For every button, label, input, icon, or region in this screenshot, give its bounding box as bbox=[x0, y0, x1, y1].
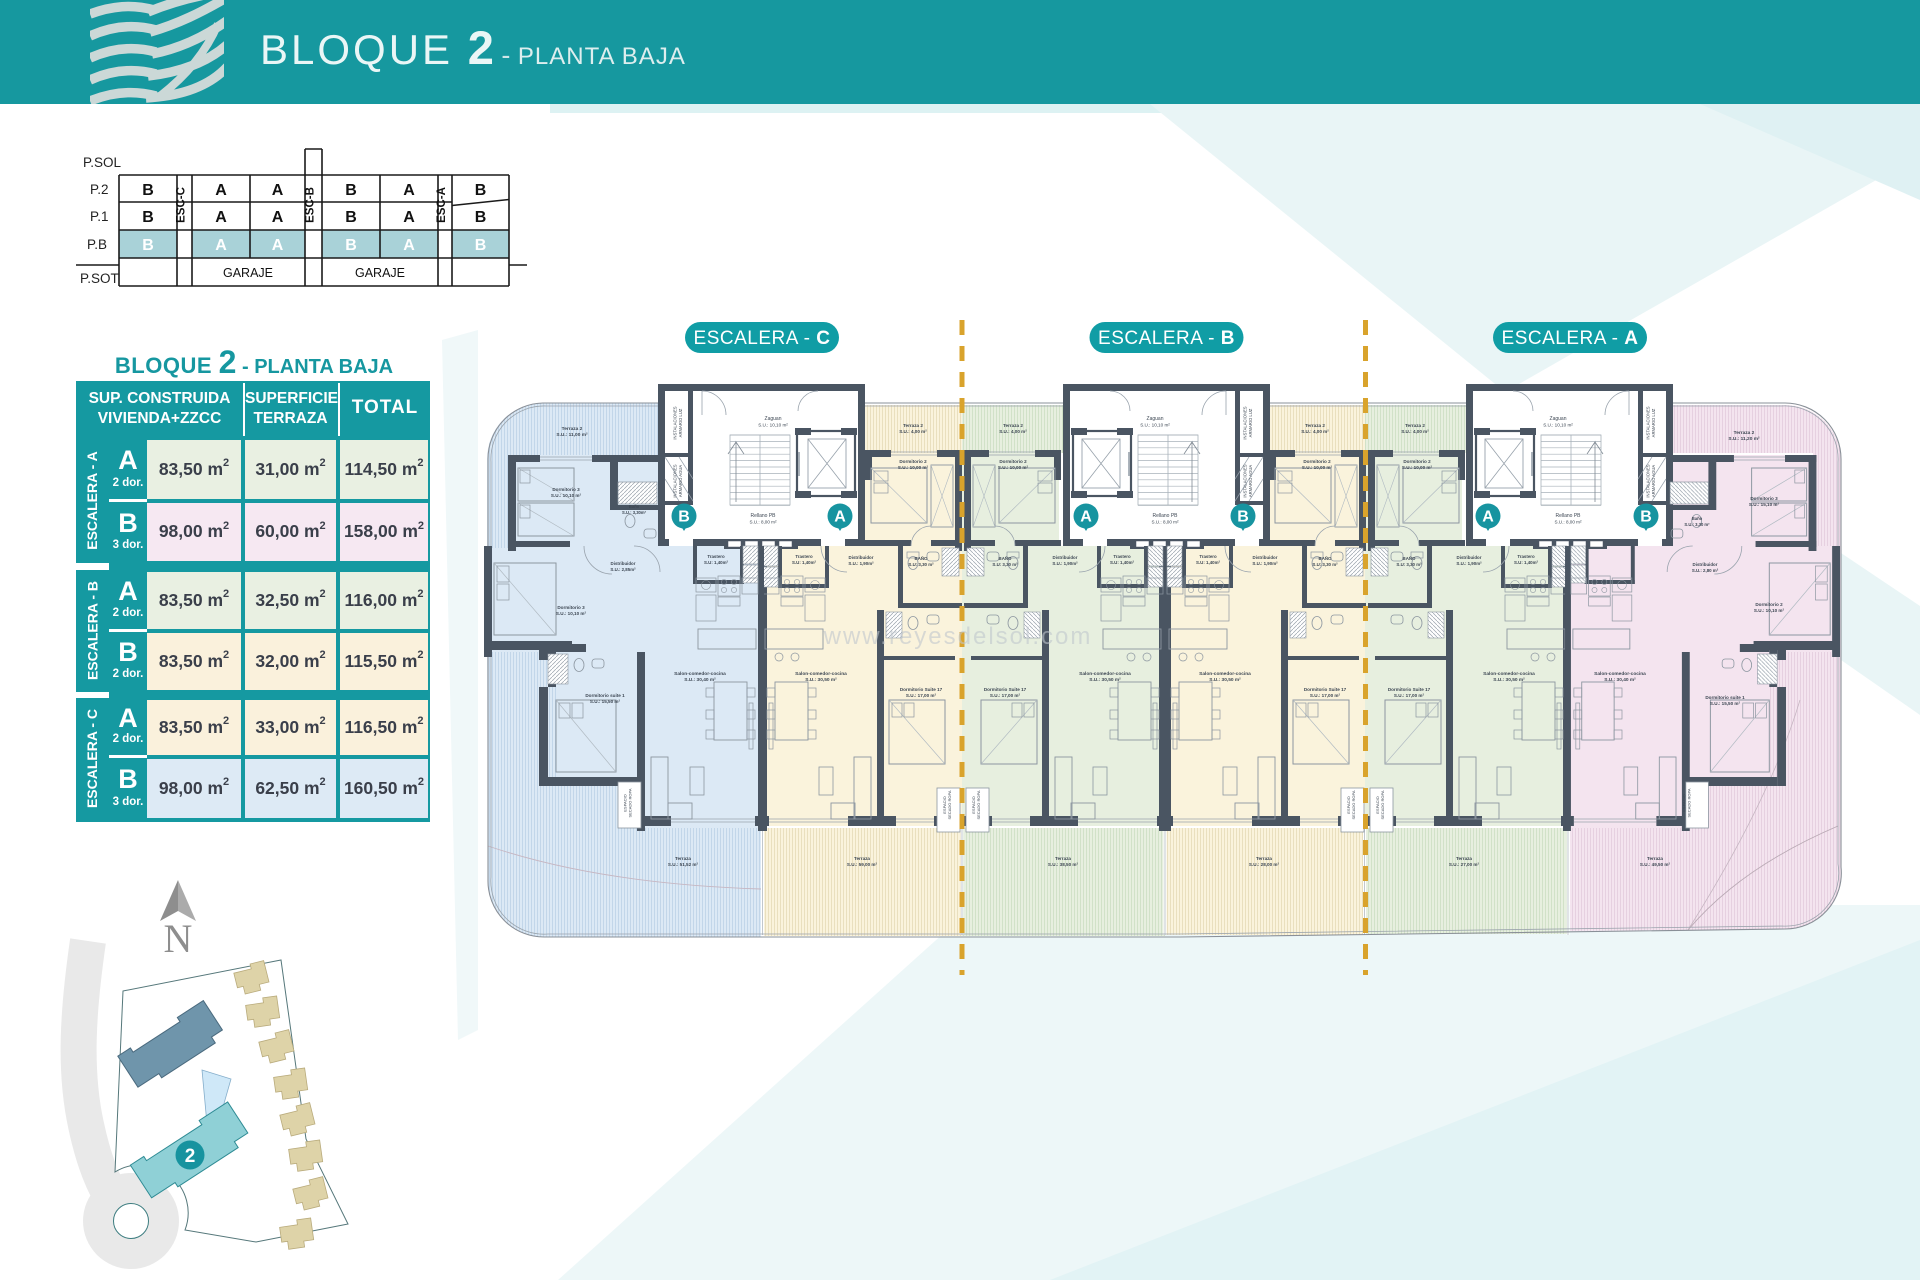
svg-text:ESC-C: ESC-C bbox=[176, 187, 188, 223]
svg-text:S.U.: 10,00 m²: S.U.: 10,00 m² bbox=[1302, 465, 1333, 470]
svg-text:A: A bbox=[403, 209, 415, 226]
svg-text:S.U.: 11,00 m²: S.U.: 11,00 m² bbox=[556, 432, 588, 438]
svg-text:Trastero: Trastero bbox=[1113, 554, 1131, 559]
svg-text:Baño: Baño bbox=[1692, 516, 1703, 521]
svg-text:N: N bbox=[164, 916, 193, 961]
svg-text:P.1: P.1 bbox=[90, 209, 109, 224]
svg-text:ESCALERA - B: ESCALERA - B bbox=[1098, 328, 1235, 349]
svg-text:Distribuidor: Distribuidor bbox=[849, 555, 874, 560]
svg-text:B: B bbox=[1640, 509, 1652, 526]
svg-text:B: B bbox=[678, 509, 690, 526]
svg-text:Terraza: Terraza bbox=[1647, 856, 1663, 861]
svg-text:S.U.: 2,80 m²: S.U.: 2,80 m² bbox=[1692, 568, 1719, 573]
svg-text:Salon-comedor-cocina: Salon-comedor-cocina bbox=[1594, 671, 1646, 677]
svg-text:ARMARIO AGUA: ARMARIO AGUA bbox=[1248, 465, 1253, 498]
svg-text:Dormitorio 2: Dormitorio 2 bbox=[899, 459, 927, 464]
svg-text:Trastero: Trastero bbox=[795, 554, 813, 559]
svg-text:S.U.: 4,00 m²: S.U.: 4,00 m² bbox=[1401, 429, 1429, 434]
svg-text:S.U.: 17,00 m²: S.U.: 17,00 m² bbox=[1394, 693, 1425, 698]
svg-text:Distribuidor: Distribuidor bbox=[611, 561, 636, 566]
svg-text:B: B bbox=[345, 182, 357, 199]
svg-text:Rellano PB: Rellano PB bbox=[750, 513, 776, 519]
svg-text:S.U.: 10,10 m²: S.U.: 10,10 m² bbox=[1543, 423, 1573, 428]
svg-text:Trastero: Trastero bbox=[1199, 554, 1217, 559]
svg-text:Dormitorio 2: Dormitorio 2 bbox=[1403, 459, 1431, 464]
svg-text:ARMARIO AGUA: ARMARIO AGUA bbox=[678, 465, 683, 498]
svg-text:Terraza: Terraza bbox=[1055, 856, 1071, 861]
svg-text:P.SOL: P.SOL bbox=[83, 155, 122, 170]
svg-text:GARAJE: GARAJE bbox=[223, 266, 273, 280]
svg-text:ARMARIO LUZ: ARMARIO LUZ bbox=[1651, 408, 1656, 437]
svg-text:GARAJE: GARAJE bbox=[355, 266, 405, 280]
svg-text:Distribuidor: Distribuidor bbox=[1053, 555, 1078, 560]
svg-text:S.U.: 4,00 m²: S.U.: 4,00 m² bbox=[899, 429, 927, 434]
svg-text:ARMARIO LUZ: ARMARIO LUZ bbox=[678, 408, 683, 437]
svg-text:ESCALERA - A: ESCALERA - A bbox=[1502, 328, 1639, 349]
svg-text:2: 2 bbox=[185, 1146, 196, 1167]
svg-text:S.U.: 15,50 m²: S.U.: 15,50 m² bbox=[590, 699, 621, 704]
svg-text:INSTALACIONES: INSTALACIONES bbox=[673, 406, 678, 439]
svg-text:A: A bbox=[403, 182, 415, 199]
svg-text:Trastero: Trastero bbox=[707, 554, 725, 559]
svg-text:B: B bbox=[345, 237, 357, 254]
svg-text:S.U.: 51,52 m²: S.U.: 51,52 m² bbox=[668, 862, 699, 867]
svg-text:BAÑO: BAÑO bbox=[1403, 556, 1417, 561]
svg-text:S.U: 3,30 m²: S.U: 3,30 m² bbox=[992, 562, 1018, 567]
svg-text:S.U.: 1,90m²: S.U.: 1,90m² bbox=[1252, 561, 1278, 566]
svg-text:B: B bbox=[345, 209, 357, 226]
svg-text:S.U.: 10,10 m²: S.U.: 10,10 m² bbox=[1754, 608, 1785, 613]
svg-text:S.U.: 10,10 m²: S.U.: 10,10 m² bbox=[556, 611, 587, 616]
svg-text:Salon-comedor-cocina: Salon-comedor-cocina bbox=[1483, 671, 1535, 677]
svg-text:A: A bbox=[215, 182, 227, 199]
svg-text:Dormitorio 3: Dormitorio 3 bbox=[1750, 496, 1778, 501]
svg-text:B: B bbox=[142, 182, 154, 199]
svg-text:P.2: P.2 bbox=[90, 182, 109, 197]
svg-text:Terraza 2: Terraza 2 bbox=[1734, 430, 1755, 436]
svg-text:S.U.: 3,30m²: S.U.: 3,30m² bbox=[622, 510, 647, 515]
svg-text:S.U.: 17,00 m²: S.U.: 17,00 m² bbox=[990, 693, 1021, 698]
svg-text:S.U.: 1,90m²: S.U.: 1,90m² bbox=[848, 561, 874, 566]
svg-text:Dormitorio Suite 17: Dormitorio Suite 17 bbox=[984, 687, 1027, 692]
svg-text:S.U.: 38,50 m²: S.U.: 38,50 m² bbox=[1048, 862, 1079, 867]
svg-text:Distribuidor: Distribuidor bbox=[1253, 555, 1278, 560]
svg-text:S.U.: 1,90m²: S.U.: 1,90m² bbox=[1052, 561, 1078, 566]
svg-text:Terraza 2: Terraza 2 bbox=[1305, 423, 1325, 428]
svg-text:S.U.: 17,00 m²: S.U.: 17,00 m² bbox=[906, 693, 937, 698]
svg-text:S.U.: 11,20 m²: S.U.: 11,20 m² bbox=[1728, 436, 1760, 442]
svg-text:Dormitorio suite 1: Dormitorio suite 1 bbox=[1705, 695, 1745, 700]
svg-text:S.U.: 17,00 m²: S.U.: 17,00 m² bbox=[1310, 693, 1341, 698]
svg-text:Salon-comedor-cocina: Salon-comedor-cocina bbox=[1079, 671, 1131, 677]
svg-text:S.U.: 1,90m²: S.U.: 1,90m² bbox=[1456, 561, 1482, 566]
svg-text:S.U.: 10,00 m²: S.U.: 10,00 m² bbox=[898, 465, 929, 470]
svg-text:INSTALACIONES: INSTALACIONES bbox=[1243, 464, 1248, 497]
svg-text:S.U.: 8,00 m²: S.U.: 8,00 m² bbox=[749, 520, 777, 525]
svg-text:Dormitorio 2: Dormitorio 2 bbox=[999, 459, 1027, 464]
svg-text:S.U.: 30,50 m²: S.U.: 30,50 m² bbox=[1493, 677, 1525, 683]
svg-text:S.U.: 49,50 m²: S.U.: 49,50 m² bbox=[1640, 862, 1671, 867]
svg-text:INSTALACIONES: INSTALACIONES bbox=[1243, 406, 1248, 439]
svg-text:Terraza: Terraza bbox=[1456, 856, 1472, 861]
svg-text:S.U.: 30,50 m²: S.U.: 30,50 m² bbox=[1209, 677, 1241, 683]
svg-text:S.U.: 15,50 m²: S.U.: 15,50 m² bbox=[1710, 701, 1741, 706]
svg-text:S.U: 3,30 m²: S.U: 3,30 m² bbox=[1396, 562, 1422, 567]
svg-text:SECADO ROPA: SECADO ROPA bbox=[1687, 788, 1692, 817]
svg-text:S.U.: 15,10 m²: S.U.: 15,10 m² bbox=[1749, 502, 1780, 507]
svg-text:BAÑO: BAÑO bbox=[999, 556, 1013, 561]
svg-text:S.U.: 2,85m²: S.U.: 2,85m² bbox=[610, 567, 636, 572]
svg-text:S.U.: 8,00 m²: S.U.: 8,00 m² bbox=[1554, 520, 1582, 525]
svg-text:BAÑO: BAÑO bbox=[1319, 556, 1333, 561]
svg-text:A: A bbox=[1080, 509, 1092, 526]
svg-text:Terraza: Terraza bbox=[675, 856, 691, 861]
svg-text:S.U: 3,30 m²: S.U: 3,30 m² bbox=[1312, 562, 1338, 567]
svg-text:B: B bbox=[1237, 509, 1249, 526]
svg-text:BAÑO: BAÑO bbox=[915, 556, 929, 561]
svg-text:S.U.: 3,30 m²: S.U.: 3,30 m² bbox=[1684, 522, 1710, 527]
svg-text:SECADO ROPA: SECADO ROPA bbox=[1351, 790, 1356, 819]
svg-text:Terraza: Terraza bbox=[1256, 856, 1272, 861]
svg-text:P.SOT: P.SOT bbox=[80, 271, 119, 286]
svg-text:Terraza 2: Terraza 2 bbox=[562, 426, 583, 432]
svg-text:Dormitorio Suite 17: Dormitorio Suite 17 bbox=[1304, 687, 1347, 692]
svg-text:Terraza 2: Terraza 2 bbox=[903, 423, 923, 428]
svg-text:S.U: 1,40m²: S.U: 1,40m² bbox=[1514, 560, 1538, 565]
svg-text:B: B bbox=[475, 182, 487, 199]
svg-text:S.U.: 30,40 m²: S.U.: 30,40 m² bbox=[684, 677, 716, 683]
svg-text:A: A bbox=[834, 509, 846, 526]
svg-text:SECADO ROPA: SECADO ROPA bbox=[976, 790, 981, 819]
svg-text:Salon-comedor-cocina: Salon-comedor-cocina bbox=[795, 671, 847, 677]
svg-text:Baño: Baño bbox=[629, 504, 640, 509]
svg-text:ARMARIO LUZ: ARMARIO LUZ bbox=[1248, 408, 1253, 437]
svg-text:S.U: 1,40m²: S.U: 1,40m² bbox=[704, 560, 728, 565]
svg-text:Terraza: Terraza bbox=[854, 856, 870, 861]
svg-text:Terraza 2: Terraza 2 bbox=[1003, 423, 1023, 428]
svg-text:S.U: 1,40m²: S.U: 1,40m² bbox=[1110, 560, 1134, 565]
svg-text:S.U.: 10,10 m²: S.U.: 10,10 m² bbox=[758, 423, 788, 428]
svg-text:Salon-comedor-cocina: Salon-comedor-cocina bbox=[1199, 671, 1251, 677]
svg-text:Zaguan: Zaguan bbox=[1147, 416, 1164, 422]
svg-text:INSTALACIONES: INSTALACIONES bbox=[1646, 406, 1651, 439]
svg-text:B: B bbox=[142, 209, 154, 226]
svg-text:Trastero: Trastero bbox=[1517, 554, 1535, 559]
svg-text:A: A bbox=[1482, 509, 1494, 526]
svg-text:Rellano PB: Rellano PB bbox=[1555, 513, 1581, 519]
svg-text:S.U: 1,40m²: S.U: 1,40m² bbox=[792, 560, 816, 565]
svg-text:A: A bbox=[215, 237, 227, 254]
svg-text:A: A bbox=[272, 209, 284, 226]
svg-text:S.U.: 4,00 m²: S.U.: 4,00 m² bbox=[1301, 429, 1329, 434]
svg-text:Salon-comedor-cocina: Salon-comedor-cocina bbox=[674, 671, 726, 677]
svg-text:S.U.: 4,00 m²: S.U.: 4,00 m² bbox=[999, 429, 1027, 434]
svg-text:Dormitorio 3: Dormitorio 3 bbox=[552, 487, 580, 492]
svg-text:ESC-A: ESC-A bbox=[436, 187, 448, 223]
svg-text:S.U: 3,30 m²: S.U: 3,30 m² bbox=[908, 562, 934, 567]
svg-text:Rellano PB: Rellano PB bbox=[1152, 513, 1178, 519]
svg-text:A: A bbox=[403, 237, 415, 254]
svg-text:S.U: 1,40m²: S.U: 1,40m² bbox=[1196, 560, 1220, 565]
svg-text:ESC-B: ESC-B bbox=[305, 187, 317, 223]
svg-text:Dormitorio 3: Dormitorio 3 bbox=[557, 605, 585, 610]
svg-text:B: B bbox=[475, 237, 487, 254]
svg-text:B: B bbox=[475, 209, 487, 226]
svg-text:S.U.: 10,00 m²: S.U.: 10,00 m² bbox=[1402, 465, 1433, 470]
svg-text:S.U.: 30,40 m²: S.U.: 30,40 m² bbox=[1604, 677, 1636, 683]
svg-text:Dormitorio Suite 17: Dormitorio Suite 17 bbox=[900, 687, 943, 692]
svg-text:S.U.: 30,50 m²: S.U.: 30,50 m² bbox=[805, 677, 837, 683]
svg-text:S.U.: 10,00 m²: S.U.: 10,00 m² bbox=[998, 465, 1029, 470]
svg-text:S.U.: 8,00 m²: S.U.: 8,00 m² bbox=[1151, 520, 1179, 525]
svg-text:Distribuidor: Distribuidor bbox=[1693, 562, 1718, 567]
svg-text:Dormitorio Suite 17: Dormitorio Suite 17 bbox=[1388, 687, 1431, 692]
svg-text:Dormitorio 2: Dormitorio 2 bbox=[1303, 459, 1331, 464]
svg-text:SECADO ROPA: SECADO ROPA bbox=[1380, 790, 1385, 819]
svg-text:B: B bbox=[142, 237, 154, 254]
svg-text:www.reyesdelsol.com: www.reyesdelsol.com bbox=[823, 623, 1093, 650]
svg-text:Zaguan: Zaguan bbox=[1550, 416, 1567, 422]
svg-text:S.U.: 10,10 m²: S.U.: 10,10 m² bbox=[1140, 423, 1170, 428]
svg-text:ESCALERA - C: ESCALERA - C bbox=[694, 328, 831, 349]
svg-text:A: A bbox=[272, 237, 284, 254]
svg-text:Dormitorio suite 1: Dormitorio suite 1 bbox=[585, 693, 625, 698]
svg-text:SECADO ROPA: SECADO ROPA bbox=[628, 788, 633, 817]
svg-text:ARMARIO AGUA: ARMARIO AGUA bbox=[1651, 465, 1656, 498]
svg-text:S.U.: 28,00 m²: S.U.: 28,00 m² bbox=[1249, 862, 1280, 867]
svg-text:INSTALACIONES: INSTALACIONES bbox=[1646, 464, 1651, 497]
svg-text:S.U.: 59,00 m²: S.U.: 59,00 m² bbox=[847, 862, 878, 867]
svg-text:P.B: P.B bbox=[87, 237, 107, 252]
svg-text:SECADO ROPA: SECADO ROPA bbox=[947, 790, 952, 819]
svg-text:A: A bbox=[215, 209, 227, 226]
svg-text:Terraza 2: Terraza 2 bbox=[1405, 423, 1425, 428]
svg-text:S.U.: 10,10 m²: S.U.: 10,10 m² bbox=[551, 493, 582, 498]
svg-text:INSTALACIONES: INSTALACIONES bbox=[673, 464, 678, 497]
svg-text:A: A bbox=[272, 182, 284, 199]
svg-text:Dormitorio 2: Dormitorio 2 bbox=[1755, 602, 1783, 607]
svg-text:S.U.: 30,50 m²: S.U.: 30,50 m² bbox=[1089, 677, 1121, 683]
svg-text:Zaguan: Zaguan bbox=[765, 416, 782, 422]
svg-text:S.U.: 27,00 m²: S.U.: 27,00 m² bbox=[1449, 862, 1480, 867]
svg-text:Distribuidor: Distribuidor bbox=[1457, 555, 1482, 560]
